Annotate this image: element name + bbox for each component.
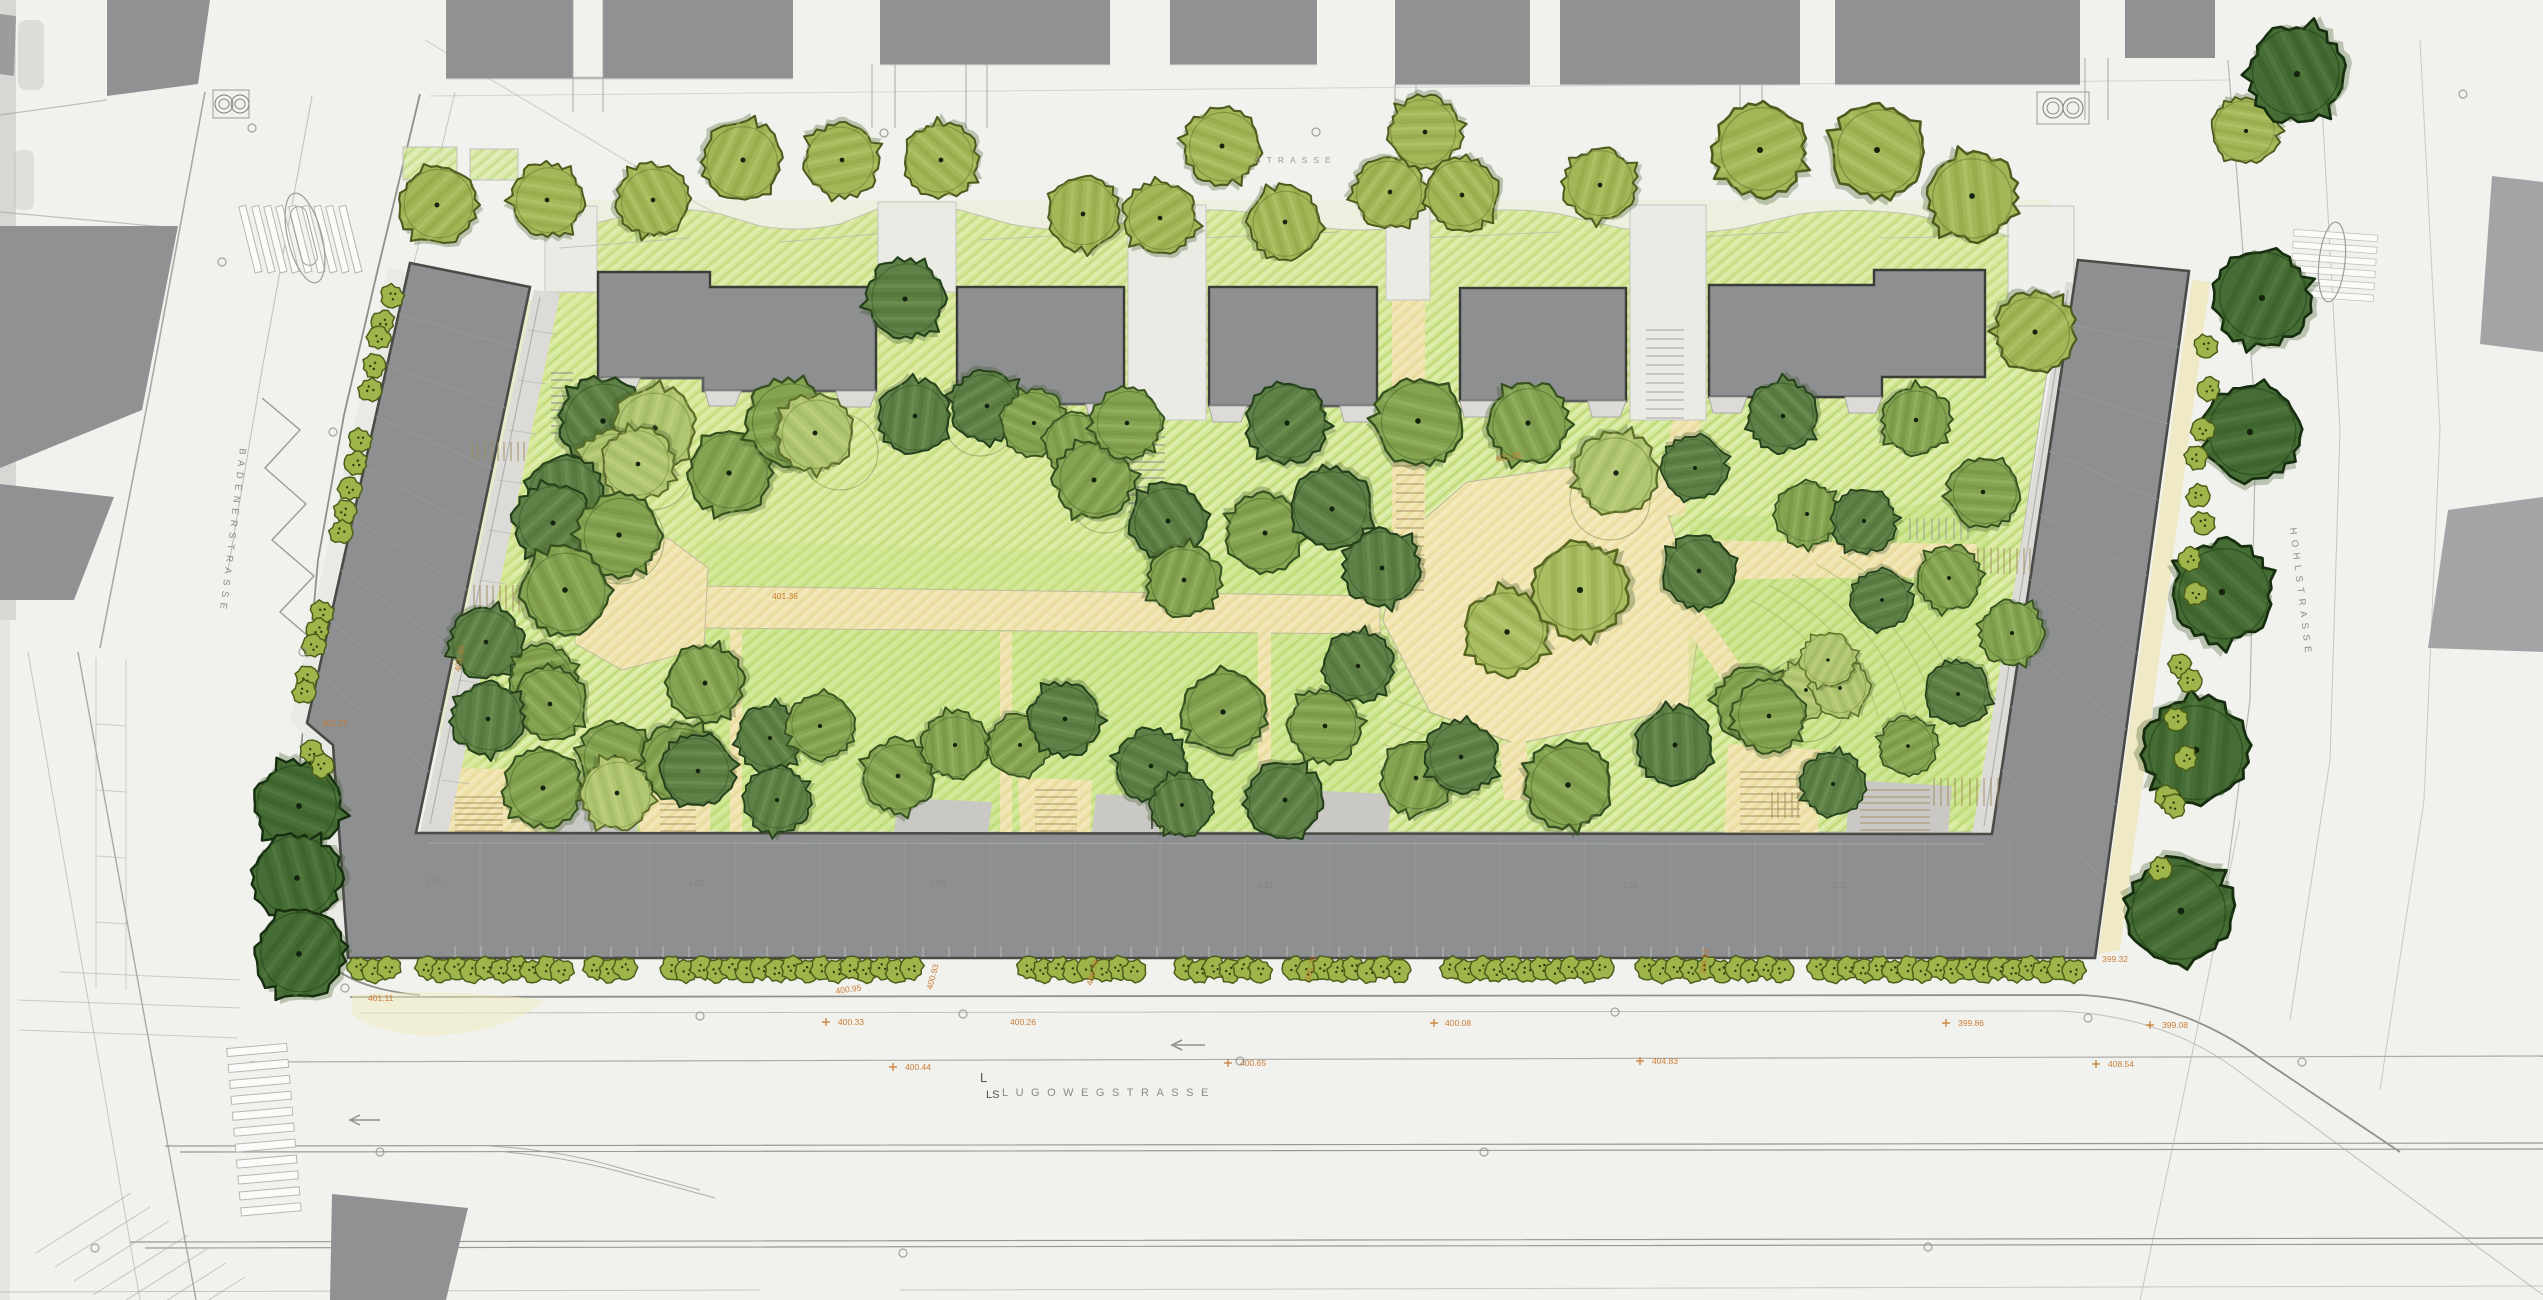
- svg-text:399.32: 399.32: [2102, 954, 2128, 964]
- svg-text:400.33: 400.33: [838, 1017, 864, 1027]
- svg-text:400.26: 400.26: [1010, 1017, 1036, 1027]
- svg-text:1.32: 1.32: [1622, 881, 1638, 890]
- svg-text:3.21: 3.21: [1832, 881, 1848, 890]
- svg-text:LUGOWEGSTRASSE: LUGOWEGSTRASSE: [1002, 1087, 1216, 1099]
- svg-text:399.08: 399.08: [2162, 1020, 2188, 1030]
- svg-text:404.83: 404.83: [1652, 1056, 1678, 1066]
- svg-text:L: L: [980, 1070, 987, 1085]
- svg-text:400.08: 400.08: [1445, 1018, 1471, 1028]
- svg-text:401.21: 401.21: [322, 718, 348, 728]
- svg-text:LS: LS: [986, 1089, 999, 1101]
- svg-text:4.92: 4.92: [688, 879, 704, 888]
- svg-text:1.55: 1.55: [930, 879, 946, 888]
- svg-text:408.54: 408.54: [2108, 1059, 2134, 1069]
- svg-text:400.44: 400.44: [905, 1062, 931, 1072]
- svg-text:401.36: 401.36: [772, 591, 798, 601]
- svg-text:STRASSE: STRASSE: [1255, 155, 1337, 165]
- svg-text:4.21: 4.21: [1258, 881, 1274, 890]
- svg-text:2.10: 2.10: [426, 877, 442, 886]
- svg-text:399.86: 399.86: [1958, 1018, 1984, 1028]
- svg-text:401.11: 401.11: [368, 993, 394, 1003]
